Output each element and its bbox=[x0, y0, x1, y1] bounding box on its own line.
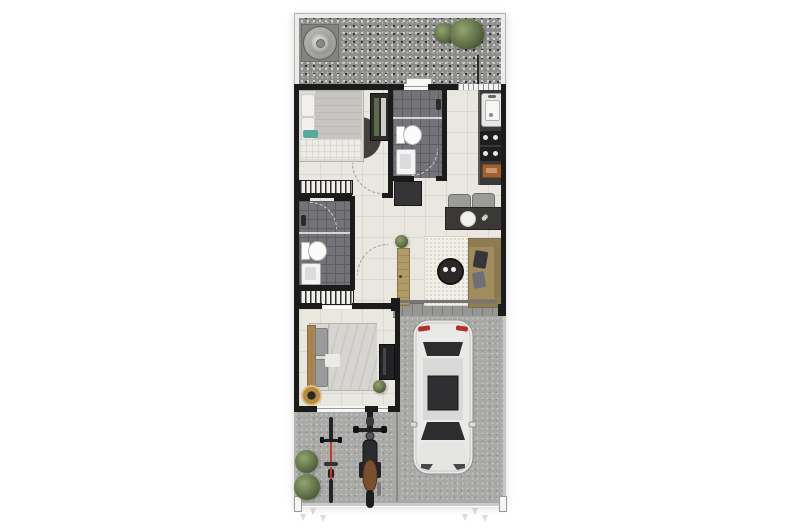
sofa-armrest bbox=[469, 239, 502, 247]
floor-plan bbox=[294, 13, 506, 507]
sink-drain bbox=[489, 113, 493, 117]
bedroom2-plant bbox=[373, 380, 386, 393]
washbasin1-bowl bbox=[400, 154, 411, 169]
wardrobe bbox=[370, 93, 390, 141]
wall bbox=[393, 176, 414, 181]
bed2-pillow bbox=[315, 328, 328, 356]
landscape-lights-right bbox=[462, 508, 492, 526]
windshield bbox=[421, 422, 465, 440]
burner bbox=[493, 151, 498, 156]
wall-bedroom2 bbox=[395, 303, 400, 412]
patio-shrub-large bbox=[450, 19, 484, 49]
bed1-teal-throw bbox=[303, 130, 318, 138]
wall-left bbox=[294, 84, 299, 412]
wardrobe-plant-strip bbox=[374, 98, 379, 136]
moto-grip bbox=[353, 426, 359, 433]
kitchen-sink-basin bbox=[485, 100, 500, 121]
coffee-table bbox=[437, 258, 464, 285]
light-marker-icon bbox=[320, 515, 326, 522]
cooktop-burners-top bbox=[480, 131, 502, 145]
bed1-pillow bbox=[301, 94, 315, 117]
front-shrub bbox=[295, 450, 318, 473]
moto-exhaust bbox=[377, 482, 381, 496]
bike-frame-rear bbox=[330, 467, 332, 481]
cutting-board-inner bbox=[486, 168, 497, 173]
motorcycle bbox=[351, 410, 389, 510]
wall bbox=[382, 193, 388, 198]
tv-panel bbox=[379, 344, 395, 380]
light-marker-icon bbox=[462, 514, 468, 521]
wall bbox=[299, 303, 322, 309]
car bbox=[411, 318, 475, 476]
wall-right bbox=[501, 84, 506, 310]
wall-bedroom1 bbox=[388, 90, 393, 198]
cup bbox=[443, 267, 448, 272]
wall bbox=[294, 406, 317, 412]
toilet2-bowl bbox=[308, 241, 327, 261]
wall-bathroom2 bbox=[350, 196, 355, 290]
dining-table bbox=[445, 207, 503, 230]
bed2-throw bbox=[325, 354, 340, 367]
shower2-glass bbox=[299, 232, 350, 234]
water-tank-cap bbox=[316, 39, 325, 48]
sink-faucet bbox=[488, 95, 496, 98]
cooktop-burners-bottom bbox=[480, 147, 502, 161]
kitchen-sink bbox=[481, 93, 503, 127]
landscape-lights-left bbox=[300, 508, 330, 526]
rear-window bbox=[423, 342, 463, 356]
kitchen-window bbox=[458, 84, 502, 90]
front-shrub bbox=[294, 474, 320, 500]
refrigerator bbox=[394, 181, 422, 206]
side-mirror bbox=[469, 422, 475, 427]
wardrobe-shelf-strip bbox=[381, 98, 386, 136]
washbasin-2 bbox=[301, 263, 321, 285]
burner bbox=[483, 151, 488, 156]
burner bbox=[493, 135, 498, 140]
sofa bbox=[468, 238, 503, 308]
threshold-line bbox=[400, 300, 498, 303]
moto-handlebar bbox=[355, 428, 385, 432]
side-mirror bbox=[411, 422, 417, 427]
light-marker-icon bbox=[472, 508, 478, 515]
moto-grip bbox=[381, 426, 387, 433]
bathroom1-window bbox=[404, 84, 428, 90]
sunroof bbox=[428, 376, 458, 410]
shower1-glass bbox=[393, 117, 442, 119]
page-background bbox=[0, 0, 800, 530]
door-knob bbox=[399, 275, 402, 278]
light-marker-icon bbox=[300, 514, 306, 521]
bike-rear-wheel bbox=[329, 479, 333, 503]
bike-frame bbox=[330, 442, 332, 462]
wall-bathroom1 bbox=[442, 90, 447, 181]
gate-post bbox=[499, 496, 507, 512]
bed1-sheet bbox=[300, 139, 361, 159]
wall bbox=[299, 196, 310, 201]
garage-side-border bbox=[503, 316, 506, 503]
moto-seat bbox=[363, 460, 377, 492]
light-marker-icon bbox=[310, 508, 316, 515]
entry-post bbox=[391, 298, 400, 311]
bike-grip bbox=[320, 437, 324, 443]
plate bbox=[460, 211, 476, 227]
driveway-divider-line bbox=[396, 412, 398, 503]
bike-front-wheel bbox=[329, 417, 333, 441]
wall-corner bbox=[388, 406, 400, 412]
table-decor bbox=[480, 214, 488, 223]
burner bbox=[483, 135, 488, 140]
front-post bbox=[498, 304, 506, 316]
toilet-1 bbox=[396, 125, 422, 144]
bicycle bbox=[318, 417, 344, 505]
bike-grip bbox=[338, 437, 342, 443]
washbasin2-bowl bbox=[305, 267, 316, 280]
wall bbox=[436, 176, 447, 181]
bed-2 bbox=[309, 323, 377, 391]
bed1-duvet bbox=[315, 91, 362, 141]
bed-1 bbox=[298, 90, 364, 162]
moto-fender bbox=[366, 417, 374, 426]
toilet1-bowl bbox=[403, 125, 422, 145]
shower-head-icon bbox=[436, 99, 441, 110]
light-marker-icon bbox=[482, 515, 488, 522]
shower-head-icon bbox=[301, 215, 306, 226]
entry-plant bbox=[395, 235, 408, 248]
cutting-board bbox=[482, 164, 502, 178]
cup bbox=[451, 267, 456, 272]
toilet-2 bbox=[301, 241, 327, 260]
water-tank bbox=[303, 26, 337, 60]
sofa-cushion-gray bbox=[472, 271, 486, 289]
sofa-cushion-dark bbox=[473, 250, 489, 269]
pouf bbox=[301, 385, 322, 406]
bike-crank bbox=[324, 462, 338, 466]
wall bbox=[299, 285, 355, 290]
tv-screen bbox=[383, 348, 386, 375]
moto-headlamp bbox=[366, 432, 374, 440]
moto-rear-tire bbox=[366, 490, 374, 508]
